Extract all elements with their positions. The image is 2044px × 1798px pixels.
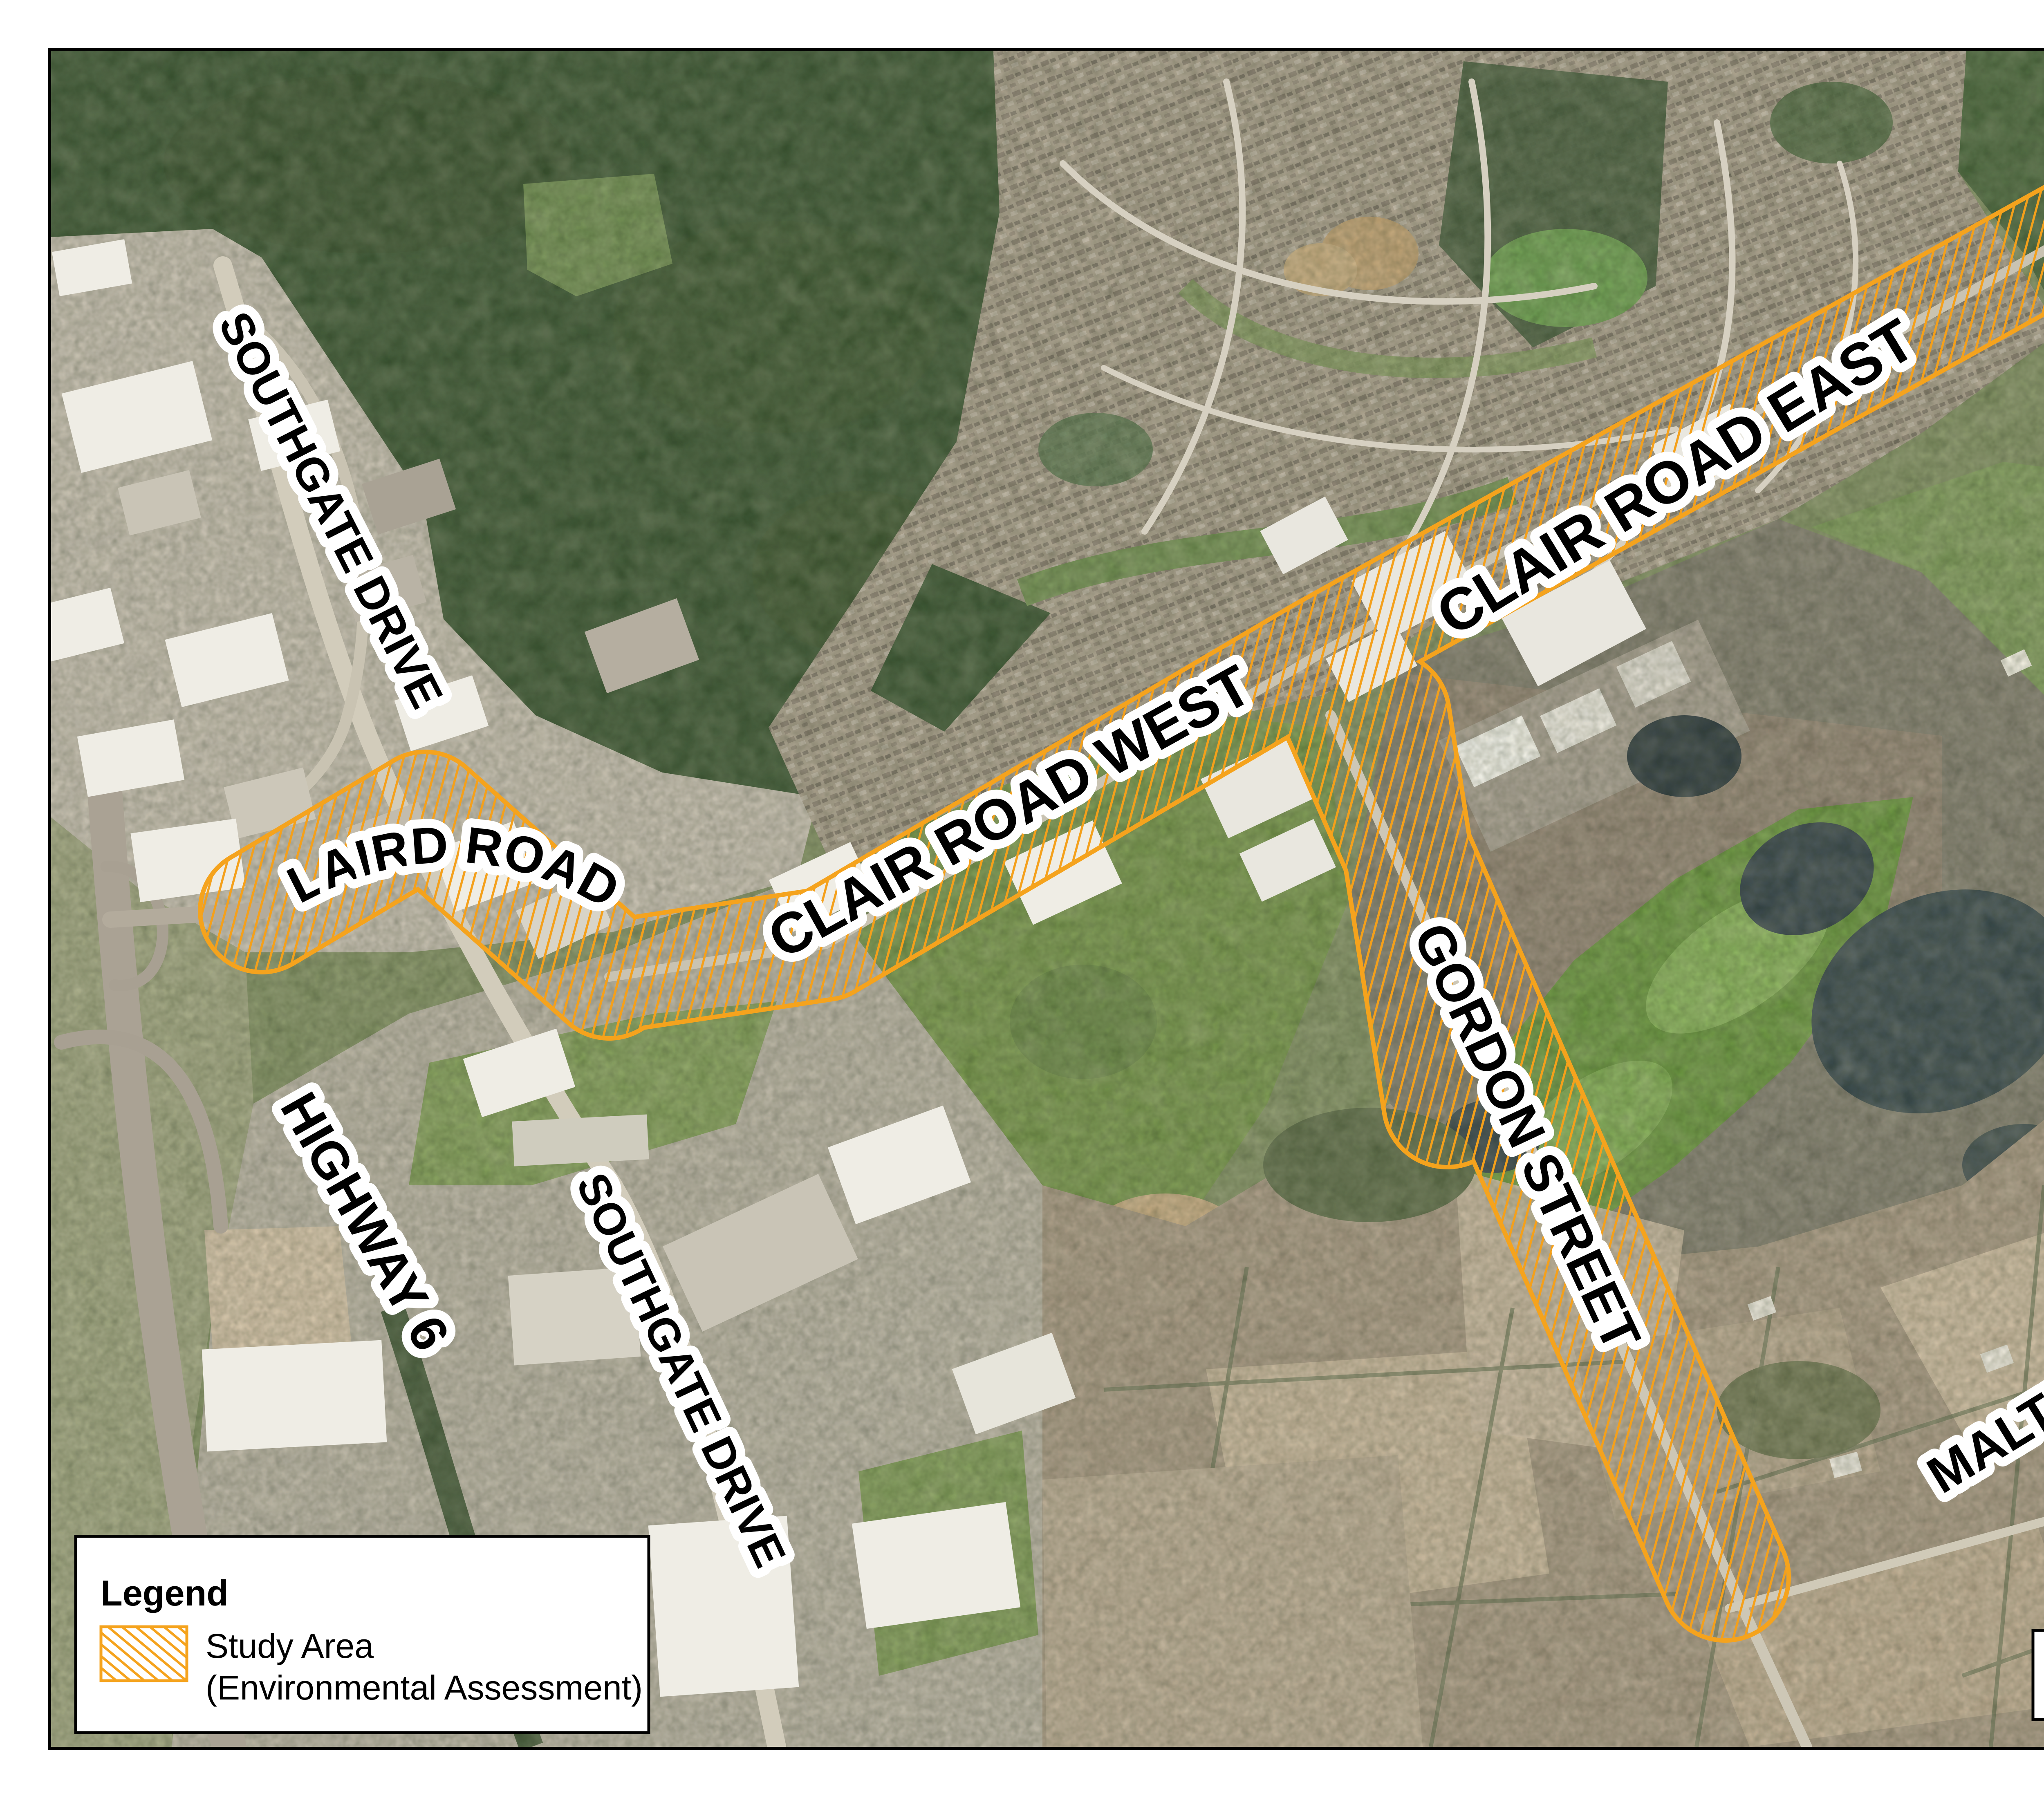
svg-text:Study Area: Study Area: [206, 1627, 374, 1665]
svg-text:Legend: Legend: [101, 1573, 229, 1613]
svg-text:(Environmental Assessment): (Environmental Assessment): [206, 1668, 643, 1707]
